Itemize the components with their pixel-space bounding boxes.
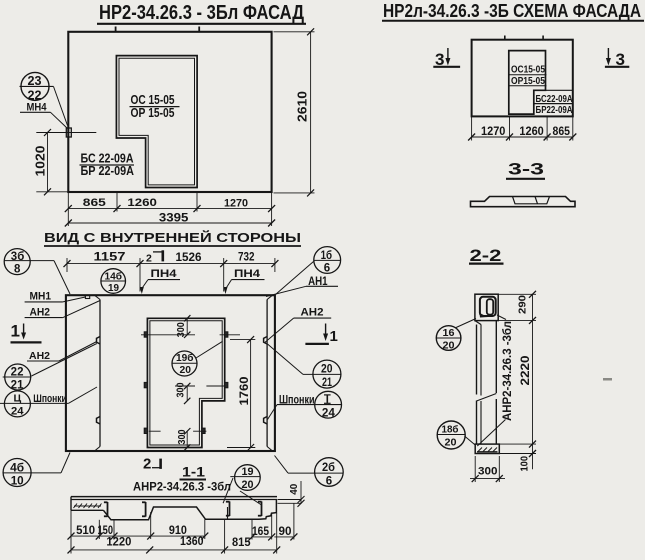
svg-text:20: 20 (321, 363, 333, 375)
svg-text:300: 300 (177, 429, 188, 444)
svg-text:ОР15-05: ОР15-05 (511, 75, 545, 87)
svg-text:АНР2-34.26.3 -3бл: АНР2-34.26.3 -3бл (133, 480, 231, 494)
svg-text:1-1: 1-1 (182, 464, 205, 480)
svg-text:24: 24 (11, 406, 24, 418)
svg-text:НР2-34.26.3 - 3Бл ФАСАД: НР2-34.26.3 - 3Бл ФАСАД (99, 2, 304, 24)
svg-text:20: 20 (180, 364, 192, 376)
svg-text:6: 6 (326, 475, 332, 487)
svg-text:1157: 1157 (94, 250, 127, 264)
svg-text:22: 22 (11, 367, 24, 379)
svg-text:10: 10 (11, 474, 24, 488)
svg-text:БР 22-09А: БР 22-09А (81, 164, 135, 178)
svg-text:1260: 1260 (127, 197, 156, 209)
svg-text:1б: 1б (321, 250, 333, 262)
svg-text:2: 2 (143, 456, 151, 473)
svg-text:2-2: 2-2 (470, 247, 502, 265)
svg-text:20: 20 (242, 479, 254, 491)
svg-text:МН4: МН4 (27, 101, 48, 113)
svg-text:1: 1 (330, 328, 338, 345)
svg-text:165: 165 (252, 524, 269, 538)
svg-text:510: 510 (76, 523, 95, 537)
svg-text:865: 865 (83, 197, 106, 209)
svg-text:23: 23 (28, 74, 42, 88)
svg-text:20: 20 (443, 340, 455, 352)
svg-text:865: 865 (553, 126, 571, 138)
svg-text:290: 290 (517, 295, 529, 314)
svg-text:АН2: АН2 (29, 350, 50, 362)
svg-text:100: 100 (520, 456, 531, 472)
svg-text:БР22-09А: БР22-09А (536, 104, 573, 116)
svg-text:300: 300 (176, 322, 187, 337)
svg-text:4б: 4б (10, 461, 24, 475)
svg-text:Ц: Ц (14, 393, 22, 405)
svg-text:19: 19 (108, 282, 119, 294)
svg-text:ВИД С ВНУТРЕННЕЙ СТОРОНЫ: ВИД С ВНУТРЕННЕЙ СТОРОНЫ (44, 230, 301, 245)
svg-text:19: 19 (242, 466, 254, 478)
svg-text:1360: 1360 (180, 534, 204, 548)
svg-text:300: 300 (478, 466, 498, 478)
svg-text:ОР 15-05: ОР 15-05 (131, 106, 175, 120)
svg-text:1020: 1020 (33, 146, 48, 177)
svg-text:ПН4: ПН4 (234, 268, 261, 280)
svg-text:Шпонки: Шпонки (33, 393, 67, 405)
svg-text:40: 40 (289, 483, 300, 494)
svg-text:3-3: 3-3 (508, 160, 544, 179)
svg-text:732: 732 (238, 250, 255, 264)
svg-text:НР2л-34.26.3 -3Б СХЕМА ФАСАДА: НР2л-34.26.3 -3Б СХЕМА ФАСАДА (383, 1, 641, 21)
svg-text:3б: 3б (11, 251, 24, 263)
svg-text:6: 6 (324, 263, 330, 275)
svg-text:24: 24 (322, 407, 336, 419)
svg-text:1260: 1260 (519, 126, 543, 138)
svg-text:АН2: АН2 (301, 307, 324, 319)
svg-text:20: 20 (445, 437, 457, 449)
svg-text:8: 8 (14, 263, 21, 275)
svg-text:МН1: МН1 (30, 291, 52, 303)
svg-text:3: 3 (616, 50, 626, 69)
svg-text:ПН4: ПН4 (151, 268, 178, 280)
svg-text:1760: 1760 (239, 377, 251, 406)
svg-text:2б: 2б (322, 462, 335, 474)
svg-text:1526: 1526 (176, 250, 202, 264)
svg-text:1: 1 (11, 322, 20, 341)
svg-text:1270: 1270 (224, 197, 248, 209)
svg-text:18б: 18б (442, 424, 459, 436)
svg-text:815: 815 (232, 535, 251, 549)
svg-text:14б: 14б (105, 271, 123, 283)
svg-text:21: 21 (11, 379, 24, 391)
svg-text:19б: 19б (176, 352, 194, 364)
svg-text:1220: 1220 (106, 535, 131, 549)
svg-text:2: 2 (146, 253, 152, 265)
svg-text:90: 90 (279, 524, 292, 538)
svg-text:АНР2-34.26.3 -3бл: АНР2-34.26.3 -3бл (500, 321, 514, 421)
svg-text:16: 16 (443, 327, 455, 339)
svg-text:ОС15-05: ОС15-05 (511, 64, 545, 76)
svg-text:300: 300 (176, 382, 187, 397)
svg-text:2610: 2610 (295, 91, 309, 122)
svg-text:АН2: АН2 (30, 306, 51, 318)
svg-text:2220: 2220 (520, 356, 532, 386)
svg-text:21: 21 (322, 377, 332, 389)
svg-text:1270: 1270 (481, 126, 505, 138)
